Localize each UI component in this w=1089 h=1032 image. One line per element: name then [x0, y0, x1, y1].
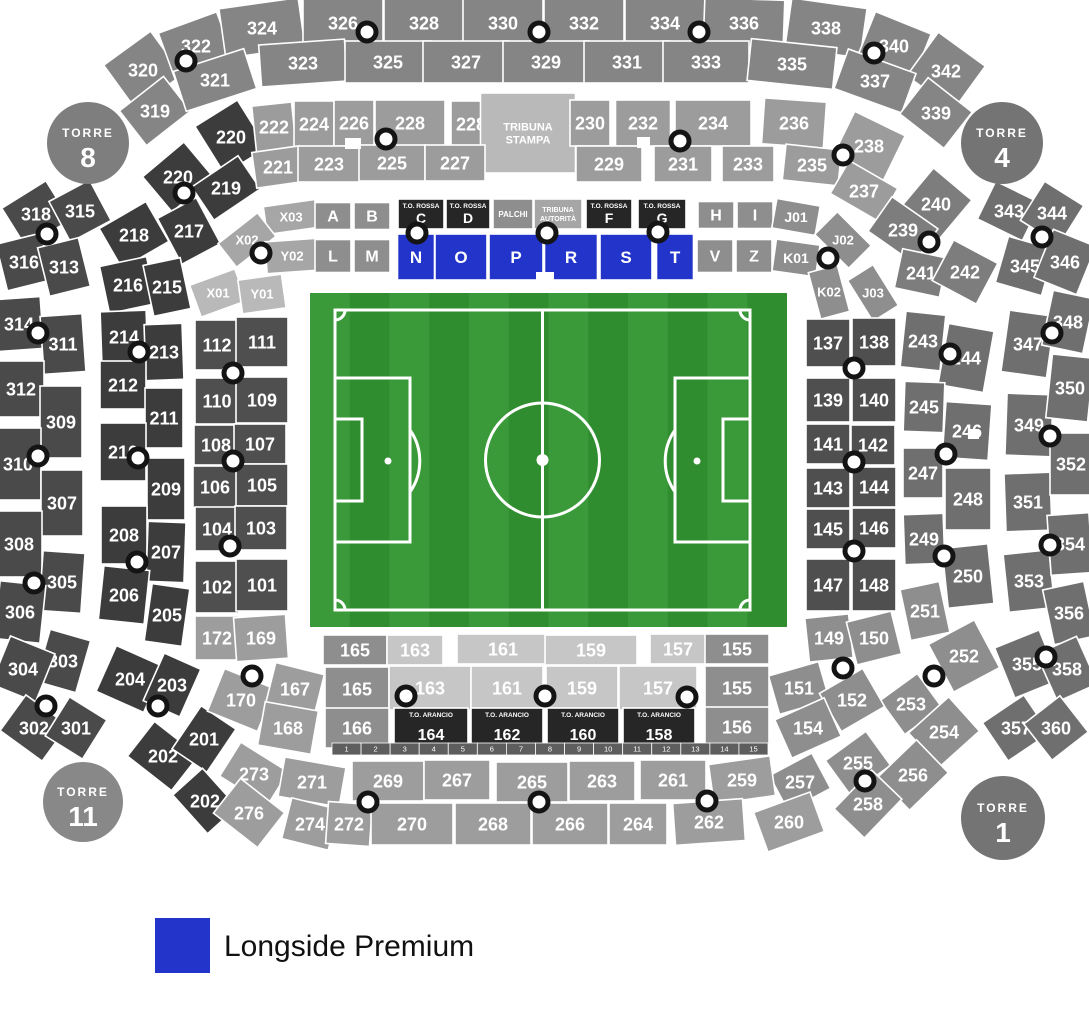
section-label: 301 [61, 718, 91, 738]
section-label: 208 [109, 525, 139, 545]
section-label: 166 [342, 718, 372, 738]
section-223[interactable]: 223 [298, 146, 360, 182]
section-palchi[interactable]: PALCHI [493, 199, 533, 229]
section-sub-label: T.O. ROSSA [644, 203, 681, 210]
section-label: 169 [246, 628, 276, 648]
section-145[interactable]: 145 [806, 509, 850, 549]
section-label: 334 [650, 13, 680, 33]
section-label: 204 [115, 669, 145, 689]
section-l[interactable]: L [315, 240, 351, 273]
section-label: 351 [1013, 492, 1043, 512]
section-164[interactable]: T.O. ARANCIO164 [394, 708, 468, 746]
section-label: 145 [813, 519, 843, 539]
section-242[interactable]: 242 [932, 240, 998, 304]
section-label: 154 [793, 718, 823, 738]
section-i[interactable]: I [737, 202, 773, 229]
section-label: 358 [1052, 659, 1082, 679]
section-166[interactable]: 166 [325, 708, 389, 748]
entrance-dot [149, 697, 167, 715]
section-label: 350 [1055, 378, 1085, 398]
section-label: 151 [784, 678, 814, 698]
gate-number: 15 [749, 745, 757, 754]
section-label: 106 [200, 477, 230, 497]
section-label: 107 [245, 434, 275, 454]
section-label: 139 [813, 390, 843, 410]
section-label: 243 [908, 331, 938, 351]
entrance-dot [536, 687, 554, 705]
section-144[interactable]: 144 [852, 467, 896, 507]
section-label: 158 [646, 727, 673, 744]
section-label: 215 [152, 277, 182, 297]
section-label: 206 [109, 585, 139, 605]
section-label: STAMPA [506, 134, 551, 146]
section-label: 253 [896, 694, 926, 714]
section-label: 339 [921, 103, 951, 123]
section-label: 152 [837, 690, 867, 710]
section-label: B [366, 209, 378, 226]
legend-label: Longside Premium [224, 930, 474, 963]
section-157[interactable]: 157 [650, 634, 706, 664]
section-label: 229 [594, 154, 624, 174]
entrance-dot [175, 184, 193, 202]
section-label: 150 [859, 628, 889, 648]
section-label: R [565, 248, 577, 267]
section-165[interactable]: 165 [323, 635, 387, 665]
section-j03[interactable]: J03 [848, 265, 899, 322]
section-325[interactable]: 325 [345, 41, 431, 83]
entrance-dot [130, 343, 148, 361]
section-label: 302 [19, 718, 49, 738]
section-label: 318 [21, 204, 51, 224]
section-label: 308 [4, 534, 34, 554]
section-label: 172 [202, 628, 232, 648]
section-333[interactable]: 333 [663, 41, 749, 83]
gate-number: 4 [432, 745, 436, 754]
entrance-dot [845, 359, 863, 377]
section-label: 254 [929, 722, 959, 742]
section-161[interactable]: 161 [457, 634, 549, 664]
section-label: 203 [157, 675, 187, 695]
section-label: 155 [722, 678, 752, 698]
entrance-dot [129, 449, 147, 467]
section-b[interactable]: B [354, 203, 390, 230]
section-label: 165 [340, 640, 370, 660]
section-267[interactable]: 267 [424, 760, 490, 800]
section-label: 109 [247, 390, 277, 410]
section-label: T [670, 248, 681, 267]
entrance-dot [221, 537, 239, 555]
section-label: 261 [658, 770, 688, 790]
section-323[interactable]: 323 [259, 39, 348, 87]
section-label: 149 [814, 628, 844, 648]
section-label: O [454, 248, 467, 267]
section-160[interactable]: T.O. ARANCIO160 [547, 708, 619, 746]
section-224[interactable]: 224 [294, 101, 334, 147]
section-label: 146 [859, 518, 889, 538]
entrance-notch [536, 272, 554, 285]
gate-number: 2 [374, 745, 378, 754]
section-261[interactable]: 261 [640, 760, 706, 800]
section-label: L [328, 249, 338, 266]
section-101[interactable]: 101 [236, 559, 288, 611]
entrance-dot [530, 793, 548, 811]
section-251[interactable]: 251 [900, 581, 950, 640]
section-tribuna-stampa[interactable]: TRIBUNASTAMPA [481, 93, 576, 173]
section-label: 247 [908, 463, 938, 483]
section-z[interactable]: Z [736, 240, 772, 273]
section-159[interactable]: 159 [546, 666, 618, 710]
section-p[interactable]: P [489, 234, 543, 280]
section-156[interactable]: 156 [705, 707, 769, 747]
section-139[interactable]: 139 [806, 378, 850, 422]
gate-number: 7 [519, 745, 523, 754]
section-label: 327 [451, 52, 481, 72]
section-label: 160 [570, 727, 597, 744]
section-236[interactable]: 236 [761, 98, 826, 148]
section-s[interactable]: S [600, 234, 652, 280]
gate-number: 14 [720, 745, 728, 754]
section-159[interactable]: 159 [545, 635, 637, 665]
section-label: 143 [813, 478, 843, 498]
section-label: 265 [517, 772, 547, 792]
section-350[interactable]: 350 [1046, 354, 1089, 422]
section-109[interactable]: 109 [236, 377, 288, 423]
section-260[interactable]: 260 [754, 792, 825, 852]
section-212[interactable]: 212 [100, 361, 146, 409]
section-259[interactable]: 259 [709, 756, 776, 804]
section-label: 316 [9, 252, 39, 272]
section-label: K02 [817, 285, 841, 300]
section-143[interactable]: 143 [806, 468, 850, 508]
section-label: I [753, 208, 757, 225]
torre-number: 1 [995, 817, 1011, 848]
section-161[interactable]: 161 [471, 666, 543, 710]
section-209[interactable]: 209 [147, 458, 185, 520]
section-label: 238 [854, 136, 884, 156]
section-243[interactable]: 243 [900, 311, 946, 371]
section-label: 307 [47, 493, 77, 513]
section-label: X01 [206, 286, 229, 301]
section-y01[interactable]: Y01 [238, 274, 286, 314]
section-label: 259 [727, 770, 757, 790]
section-label: 313 [49, 257, 79, 277]
section-label: 325 [373, 52, 403, 72]
section-308[interactable]: 308 [0, 511, 42, 577]
section-147[interactable]: 147 [806, 559, 850, 611]
section-169[interactable]: 169 [234, 614, 289, 662]
section-sub-label: T.O. ARANCIO [409, 712, 453, 719]
section-label: 344 [1037, 203, 1067, 223]
section-103[interactable]: 103 [235, 506, 287, 550]
section-h[interactable]: H [698, 202, 734, 229]
section-label: 156 [722, 717, 752, 737]
section-label: 205 [152, 605, 182, 625]
entrance-dot [408, 224, 426, 242]
gate-number: 6 [490, 745, 494, 754]
torre-name: TORRE [977, 801, 1029, 815]
section-label: 221 [263, 157, 293, 177]
penalty-spot-right [694, 458, 701, 465]
section-label: 213 [149, 342, 179, 362]
section-106[interactable]: 106 [193, 466, 237, 508]
section-158[interactable]: T.O. ARANCIO158 [623, 708, 695, 746]
entrance-dot [358, 23, 376, 41]
section-221[interactable]: 221 [252, 146, 305, 188]
section-label: 112 [202, 335, 231, 355]
section-140[interactable]: 140 [852, 378, 896, 422]
section-349[interactable]: 349 [1005, 393, 1053, 457]
section-label: TRIBUNA [503, 121, 553, 133]
section-137[interactable]: 137 [806, 319, 850, 367]
section-v[interactable]: V [697, 240, 733, 273]
entrance-dot [834, 659, 852, 677]
section-label: 264 [623, 814, 653, 834]
center-spot [537, 454, 549, 466]
section-label: Y01 [250, 287, 273, 302]
section-148[interactable]: 148 [852, 559, 896, 611]
section-102[interactable]: 102 [195, 561, 239, 613]
section-label: 256 [898, 765, 928, 785]
football-pitch [310, 293, 787, 627]
section-label: J02 [832, 233, 854, 248]
section-207[interactable]: 207 [146, 521, 186, 582]
section-248[interactable]: 248 [945, 468, 991, 530]
section-label: 305 [47, 572, 77, 592]
section-label: 304 [8, 659, 38, 679]
torre-name: TORRE [976, 126, 1028, 140]
section-label: 251 [910, 601, 940, 621]
section-label: 274 [295, 814, 325, 834]
section-label: 360 [1041, 718, 1071, 738]
section-263[interactable]: 263 [569, 761, 635, 801]
section-230[interactable]: 230 [570, 100, 610, 146]
section-label: 312 [6, 379, 36, 399]
section-360[interactable]: 360 [1024, 696, 1089, 761]
section-105[interactable]: 105 [236, 464, 288, 506]
section-label: 231 [668, 154, 698, 174]
section-label: PALCHI [498, 210, 527, 219]
gate-number: 12 [662, 745, 670, 754]
section-label: 159 [567, 678, 597, 698]
entrance-notch [637, 137, 650, 148]
section-227[interactable]: 227 [425, 145, 485, 181]
section-271[interactable]: 271 [278, 757, 346, 807]
section-168[interactable]: 168 [258, 702, 319, 755]
entrance-dot [128, 553, 146, 571]
entrance-dot [1037, 648, 1055, 666]
section-m[interactable]: M [354, 240, 390, 273]
section-label: 306 [5, 602, 35, 622]
section-211[interactable]: 211 [145, 388, 183, 448]
section-label: 161 [492, 678, 522, 698]
gate-number: 8 [548, 745, 552, 754]
section-205[interactable]: 205 [144, 584, 190, 647]
section-268[interactable]: 268 [455, 803, 531, 845]
entrance-dot [865, 44, 883, 62]
section-label: F [605, 210, 614, 226]
section-label: 240 [921, 194, 951, 214]
entrance-dot [1033, 228, 1051, 246]
section-label: 155 [722, 639, 752, 659]
section-label: 230 [575, 113, 605, 133]
section-x01[interactable]: X01 [190, 269, 247, 317]
section-label: X03 [279, 210, 302, 225]
entrance-notch [968, 429, 979, 439]
section-k02[interactable]: K02 [808, 265, 849, 319]
section-225[interactable]: 225 [359, 145, 425, 181]
section-label: P [510, 248, 521, 267]
section-309[interactable]: 309 [40, 386, 82, 458]
section-165[interactable]: 165 [325, 667, 389, 711]
section-label: 267 [442, 770, 472, 790]
section-305[interactable]: 305 [39, 551, 85, 614]
section-label: 217 [174, 221, 204, 241]
section-label: A [327, 209, 339, 226]
section-label: 236 [779, 113, 809, 133]
section-331[interactable]: 331 [584, 41, 670, 83]
section-j01[interactable]: J01 [772, 198, 821, 235]
section-f[interactable]: T.O. ROSSAF [586, 199, 632, 229]
section-264[interactable]: 264 [609, 803, 667, 845]
section-222[interactable]: 222 [252, 102, 297, 152]
section-328[interactable]: 328 [384, 0, 464, 47]
section-307[interactable]: 307 [41, 470, 83, 536]
gate-number: 13 [691, 745, 699, 754]
section-sub-label: T.O. ARANCIO [485, 712, 529, 719]
section-label: 163 [415, 678, 445, 698]
entrance-dot [845, 542, 863, 560]
section-label: 148 [859, 575, 889, 595]
legend: Longside Premium [155, 918, 474, 973]
section-206[interactable]: 206 [98, 566, 149, 625]
section-label: 326 [328, 13, 358, 33]
penalty-spot-left [385, 458, 392, 465]
section-label: 315 [65, 201, 95, 221]
section-329[interactable]: 329 [503, 41, 589, 83]
section-162[interactable]: T.O. ARANCIO162 [471, 708, 543, 746]
section-label: 101 [247, 575, 277, 595]
section-label: 201 [189, 729, 219, 749]
section-label: 336 [729, 13, 759, 33]
entrance-dot [690, 23, 708, 41]
gate-number: 3 [403, 745, 407, 754]
section-label: 157 [643, 678, 673, 698]
section-155[interactable]: 155 [705, 666, 769, 710]
entrance-dot [678, 688, 696, 706]
entrance-dot [538, 224, 556, 242]
entrance-dot [941, 345, 959, 363]
section-label: 228 [395, 113, 425, 133]
section-332[interactable]: 332 [544, 0, 624, 47]
section-311[interactable]: 311 [40, 314, 86, 375]
section-label: 257 [785, 772, 815, 792]
section-233[interactable]: 233 [722, 146, 774, 182]
section-y02[interactable]: Y02 [265, 238, 319, 274]
section-label: 162 [494, 727, 521, 744]
section-label: 237 [849, 181, 879, 201]
section-label: 260 [774, 812, 804, 832]
section-sub-label: T.O. ROSSA [450, 203, 487, 210]
section-155[interactable]: 155 [705, 634, 769, 664]
section-d[interactable]: T.O. ROSSAD [446, 199, 490, 229]
section-label: 330 [488, 13, 518, 33]
section-a[interactable]: A [315, 203, 351, 230]
torre-number: 4 [994, 142, 1010, 173]
section-229[interactable]: 229 [576, 146, 642, 182]
stadium-seat-map: 3203223243263283303323343363383403423193… [0, 0, 1089, 1032]
section-270[interactable]: 270 [371, 803, 453, 845]
section-356[interactable]: 356 [1043, 581, 1089, 645]
section-335[interactable]: 335 [747, 39, 837, 90]
section-label: 250 [953, 566, 983, 586]
section-o[interactable]: O [435, 234, 487, 280]
section-label: 224 [299, 114, 329, 134]
section-label: M [365, 249, 378, 266]
section-x03[interactable]: X03 [263, 200, 318, 235]
section-110[interactable]: 110 [195, 378, 239, 424]
entrance-dot [925, 667, 943, 685]
section-label: 223 [314, 154, 344, 174]
section-149[interactable]: 149 [805, 614, 853, 662]
section-sub-label: T.O. ARANCIO [637, 712, 681, 719]
section-313[interactable]: 313 [38, 238, 91, 297]
entrance-dot [530, 23, 548, 41]
torre-4: TORRE4 [961, 102, 1043, 184]
section-351[interactable]: 351 [1004, 472, 1052, 532]
section-245[interactable]: 245 [903, 381, 945, 432]
entrance-dot [177, 52, 195, 70]
section-label: 233 [733, 154, 763, 174]
section-327[interactable]: 327 [423, 41, 509, 83]
section-label: AUTORITÀ [540, 214, 576, 223]
torre-number: 8 [80, 142, 96, 173]
entrance-dot [920, 233, 938, 251]
section-label: 270 [397, 814, 427, 834]
section-150[interactable]: 150 [846, 611, 901, 665]
section-312[interactable]: 312 [0, 361, 44, 417]
entrance-dot [37, 697, 55, 715]
section-label: 319 [140, 101, 170, 121]
section-label: 168 [273, 718, 303, 738]
section-172[interactable]: 172 [195, 616, 239, 660]
section-111[interactable]: 111 [236, 317, 288, 367]
section-label: 321 [200, 70, 230, 90]
section-label: 110 [202, 391, 231, 411]
entrance-dot [224, 364, 242, 382]
entrance-dot [224, 452, 242, 470]
section-label: J03 [862, 286, 884, 301]
section-label: 207 [151, 542, 181, 562]
entrance-dot [1041, 536, 1059, 554]
section-label: 165 [342, 679, 372, 699]
entrance-dot [252, 244, 270, 262]
torre-1: TORRE1 [961, 776, 1045, 860]
section-label: 266 [555, 814, 585, 834]
section-label: 268 [478, 814, 508, 834]
section-label: H [710, 208, 722, 225]
section-label: 211 [149, 408, 178, 428]
section-label: Z [749, 249, 759, 266]
section-label: 222 [259, 117, 289, 137]
section-label: 258 [853, 794, 883, 814]
section-215[interactable]: 215 [143, 258, 191, 317]
entrance-dot [856, 772, 874, 790]
section-label: 170 [226, 690, 256, 710]
section-label: 276 [234, 803, 264, 823]
section-label: 324 [247, 18, 277, 38]
entrance-dot [243, 667, 261, 685]
section-163[interactable]: 163 [387, 635, 443, 665]
